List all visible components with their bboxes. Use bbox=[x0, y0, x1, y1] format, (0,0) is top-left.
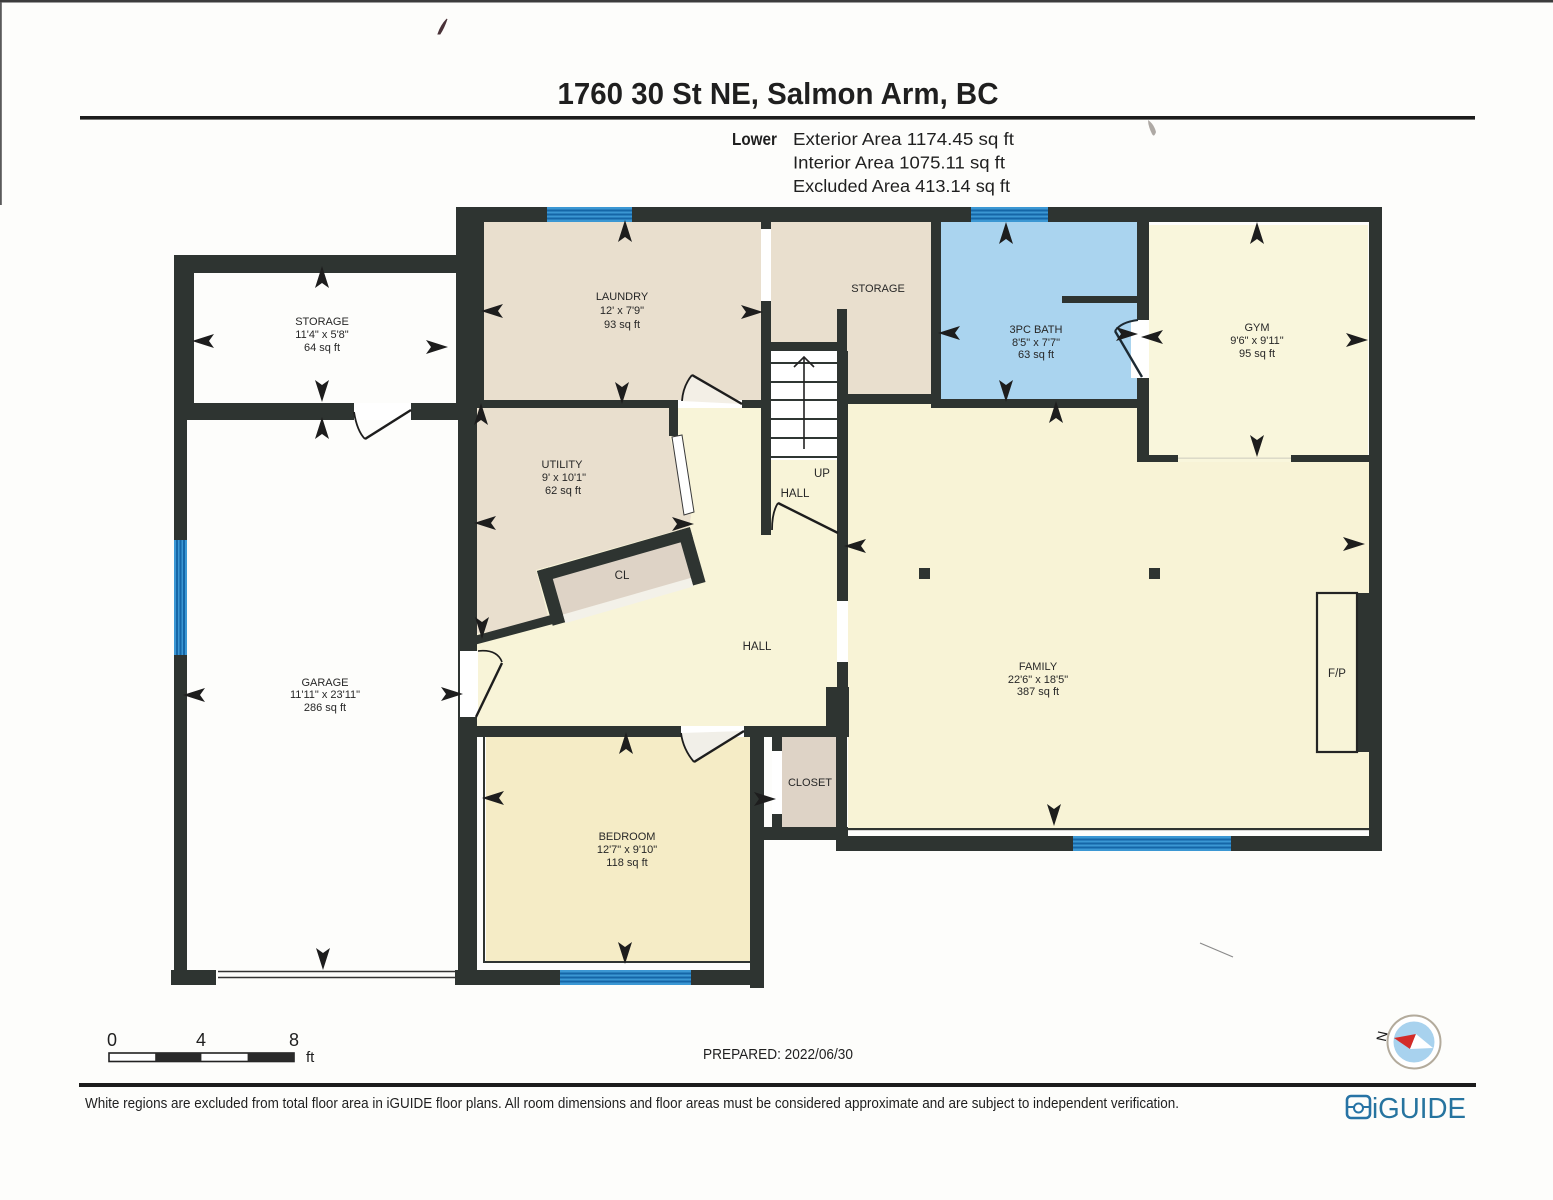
svg-text:3PC BATH: 3PC BATH bbox=[1010, 324, 1063, 336]
svg-text:95 sq ft: 95 sq ft bbox=[1239, 348, 1275, 360]
svg-text:63 sq ft: 63 sq ft bbox=[1018, 349, 1054, 361]
svg-text:93 sq ft: 93 sq ft bbox=[604, 319, 640, 331]
svg-text:0: 0 bbox=[107, 1030, 117, 1050]
svg-text:Exterior Area 1174.45 sq ft: Exterior Area 1174.45 sq ft bbox=[793, 129, 1014, 149]
svg-text:62 sq ft: 62 sq ft bbox=[545, 485, 581, 497]
svg-text:LAUNDRY: LAUNDRY bbox=[596, 291, 649, 303]
svg-text:STORAGE: STORAGE bbox=[851, 283, 905, 295]
svg-text:9' x 10'1": 9' x 10'1" bbox=[542, 472, 586, 484]
svg-text:ft: ft bbox=[306, 1049, 315, 1066]
svg-text:387 sq ft: 387 sq ft bbox=[1017, 686, 1059, 698]
svg-text:8: 8 bbox=[289, 1030, 299, 1050]
svg-text:11'4" x 5'8": 11'4" x 5'8" bbox=[295, 329, 348, 341]
svg-text:12' x 7'9": 12' x 7'9" bbox=[600, 305, 644, 317]
svg-text:BEDROOM: BEDROOM bbox=[599, 831, 656, 843]
svg-text:64 sq ft: 64 sq ft bbox=[304, 342, 340, 354]
svg-text:11'11" x 23'11": 11'11" x 23'11" bbox=[290, 689, 360, 701]
svg-text:8'5" x 7'7": 8'5" x 7'7" bbox=[1012, 337, 1060, 349]
svg-text:Interior Area 1075.11 sq ft: Interior Area 1075.11 sq ft bbox=[793, 153, 1005, 173]
svg-text:12'7" x 9'10": 12'7" x 9'10" bbox=[597, 844, 657, 856]
svg-text:GARAGE: GARAGE bbox=[301, 677, 348, 689]
svg-text:White regions are excluded fro: White regions are excluded from total fl… bbox=[85, 1095, 1179, 1112]
svg-text:PREPARED: 2022/06/30: PREPARED: 2022/06/30 bbox=[703, 1046, 853, 1063]
svg-text:286 sq ft: 286 sq ft bbox=[304, 702, 346, 714]
svg-text:22'6" x 18'5": 22'6" x 18'5" bbox=[1008, 674, 1068, 686]
svg-text:Lower: Lower bbox=[732, 129, 777, 149]
svg-text:118 sq ft: 118 sq ft bbox=[606, 857, 647, 869]
svg-text:9'6" x 9'11": 9'6" x 9'11" bbox=[1230, 335, 1283, 347]
svg-text:CLOSET: CLOSET bbox=[788, 777, 832, 789]
svg-text:HALL: HALL bbox=[743, 641, 772, 653]
svg-text:FAMILY: FAMILY bbox=[1019, 661, 1058, 673]
svg-text:F/P: F/P bbox=[1328, 668, 1346, 680]
svg-text:iGUIDE: iGUIDE bbox=[1372, 1093, 1466, 1125]
svg-text:4: 4 bbox=[196, 1030, 206, 1050]
svg-text:STORAGE: STORAGE bbox=[295, 316, 349, 328]
svg-text:HALL: HALL bbox=[781, 488, 810, 500]
svg-text:GYM: GYM bbox=[1244, 322, 1269, 334]
svg-text:UP: UP bbox=[814, 468, 830, 480]
svg-text:Excluded Area 413.14 sq ft: Excluded Area 413.14 sq ft bbox=[793, 176, 1010, 196]
svg-text:1760 30 St NE, Salmon Arm, BC: 1760 30 St NE, Salmon Arm, BC bbox=[558, 76, 999, 111]
svg-text:UTILITY: UTILITY bbox=[542, 459, 584, 471]
svg-text:CL: CL bbox=[615, 570, 630, 582]
